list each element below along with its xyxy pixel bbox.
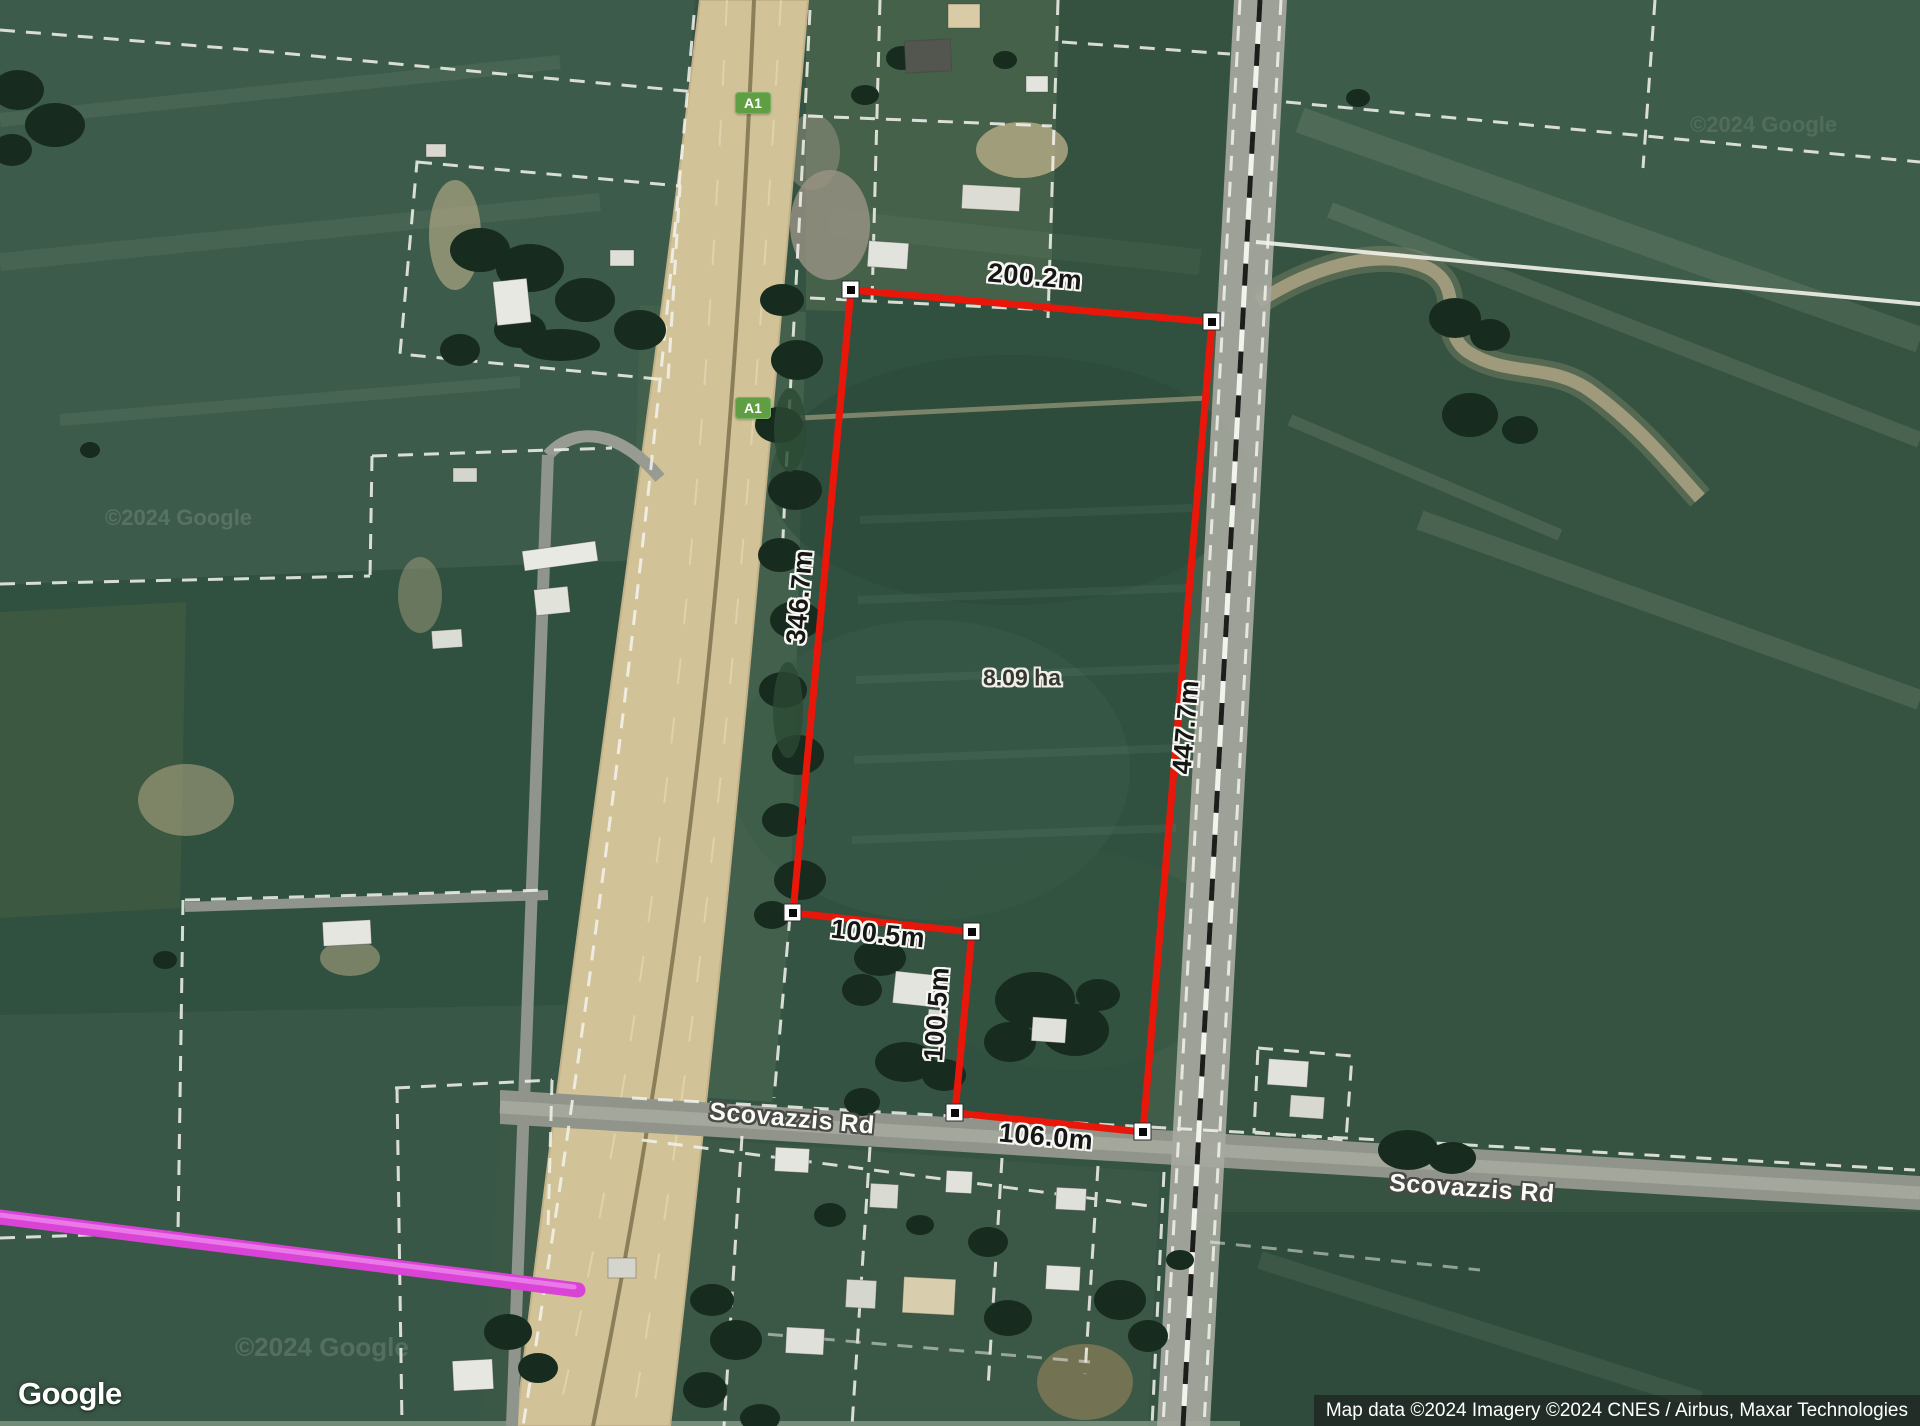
imagery-watermark: ©2024 Google bbox=[105, 505, 252, 531]
measurement-label-notch-side: 100.5m bbox=[918, 966, 956, 1063]
highway-shield-a1-north: A1 bbox=[735, 92, 771, 114]
google-logo[interactable]: Google bbox=[18, 1376, 122, 1412]
fields-layer bbox=[0, 0, 1920, 1426]
highway-shield-a1-south: A1 bbox=[735, 397, 771, 419]
map-canvas[interactable]: 200.2m 346.7m 447.7m 100.5m 100.5m 106.0… bbox=[0, 0, 1920, 1426]
imagery-watermark: ©2024 Google bbox=[1690, 112, 1837, 138]
map-attribution: Map data ©2024 Imagery ©2024 CNES / Airb… bbox=[1314, 1395, 1920, 1426]
satellite-imagery bbox=[0, 0, 1920, 1426]
parcel-area-label: 8.09 ha bbox=[983, 665, 1061, 692]
imagery-watermark: ©2024 Google bbox=[235, 1332, 409, 1363]
